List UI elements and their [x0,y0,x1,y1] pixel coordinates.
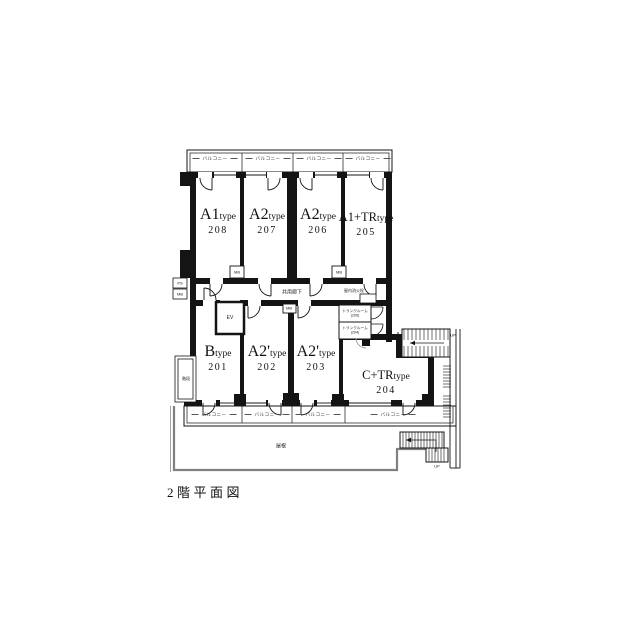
meter-box-label-4: MB [177,292,183,297]
unit-label-201: Btype 201 [204,344,231,373]
unit-202-number: 202 [248,363,287,374]
unit-label-208: A1type 208 [200,207,236,236]
balcony-label-bottom-1: バルコニー [189,412,240,418]
unit-205-type: A1+TR [339,210,377,224]
unit-label-204: C+TRtype 204 [362,367,410,396]
unit-202-type: A2' [248,343,270,360]
unit-label-206: A2type 206 [300,207,336,236]
balcony-label-top-4: バルコニー [343,156,394,162]
unit-203-type: A2' [297,343,319,360]
floor-plan-canvas: バルコニー バルコニー バルコニー バルコニー A1type 208 A2typ… [0,0,640,640]
pipe-space-label: PS [177,281,182,286]
unit-208-number: 208 [200,226,236,237]
meter-box-label-1: MB [234,270,240,275]
up-label-bottom: UP [434,464,440,469]
unit-206-number: 206 [300,226,336,237]
unit-207-type: A2 [249,206,269,223]
stairs-label: 階段 [182,376,190,382]
unit-204-type: C+TR [362,368,393,382]
balcony-label-bottom-3: バルコニー [293,412,344,418]
floor-plan-drawing [0,0,640,640]
balcony-label-bottom-2: バルコニー [242,412,293,418]
trunk-room-label-204: トランクルーム (204) [342,325,368,334]
meter-box-label-3: MB [286,306,292,311]
unit-207-number: 207 [249,226,285,237]
balcony-label-bottom-4: バルコニー [368,412,419,418]
unit-201-type: B [204,343,215,360]
unit-206-type: A2 [300,206,320,223]
meter-box-label-2: MB [336,270,342,275]
stair-bottom-right [400,432,448,462]
up-label-top: UP [450,333,456,338]
unit-201-number: 201 [204,363,231,374]
unit-203-number: 203 [297,363,336,374]
unit-204-number: 204 [362,386,410,397]
unit-label-202: A2'type 202 [248,344,287,373]
trunk-room-label-205: トランクルーム (205) [342,308,368,317]
elevator-label: EV [227,315,234,321]
fire-hydrant-label: 屋内消火栓 [344,288,364,294]
roof-label: 屋根 [276,443,286,450]
stair-top-right [402,329,450,357]
corridor-label: 共用廊下 [282,289,302,296]
unit-208-type: A1 [200,206,220,223]
unit-label-207: A2type 207 [249,207,285,236]
balcony-label-top-3: バルコニー [294,156,345,162]
unit-label-205: A1+TRtype 205 [339,209,394,238]
balcony-label-top-2: バルコニー [243,156,294,162]
unit-205-number: 205 [339,228,394,239]
page-title: 2階平面図 [167,482,243,501]
balcony-label-top-1: バルコニー [190,156,241,162]
unit-label-203: A2'type 203 [297,344,336,373]
